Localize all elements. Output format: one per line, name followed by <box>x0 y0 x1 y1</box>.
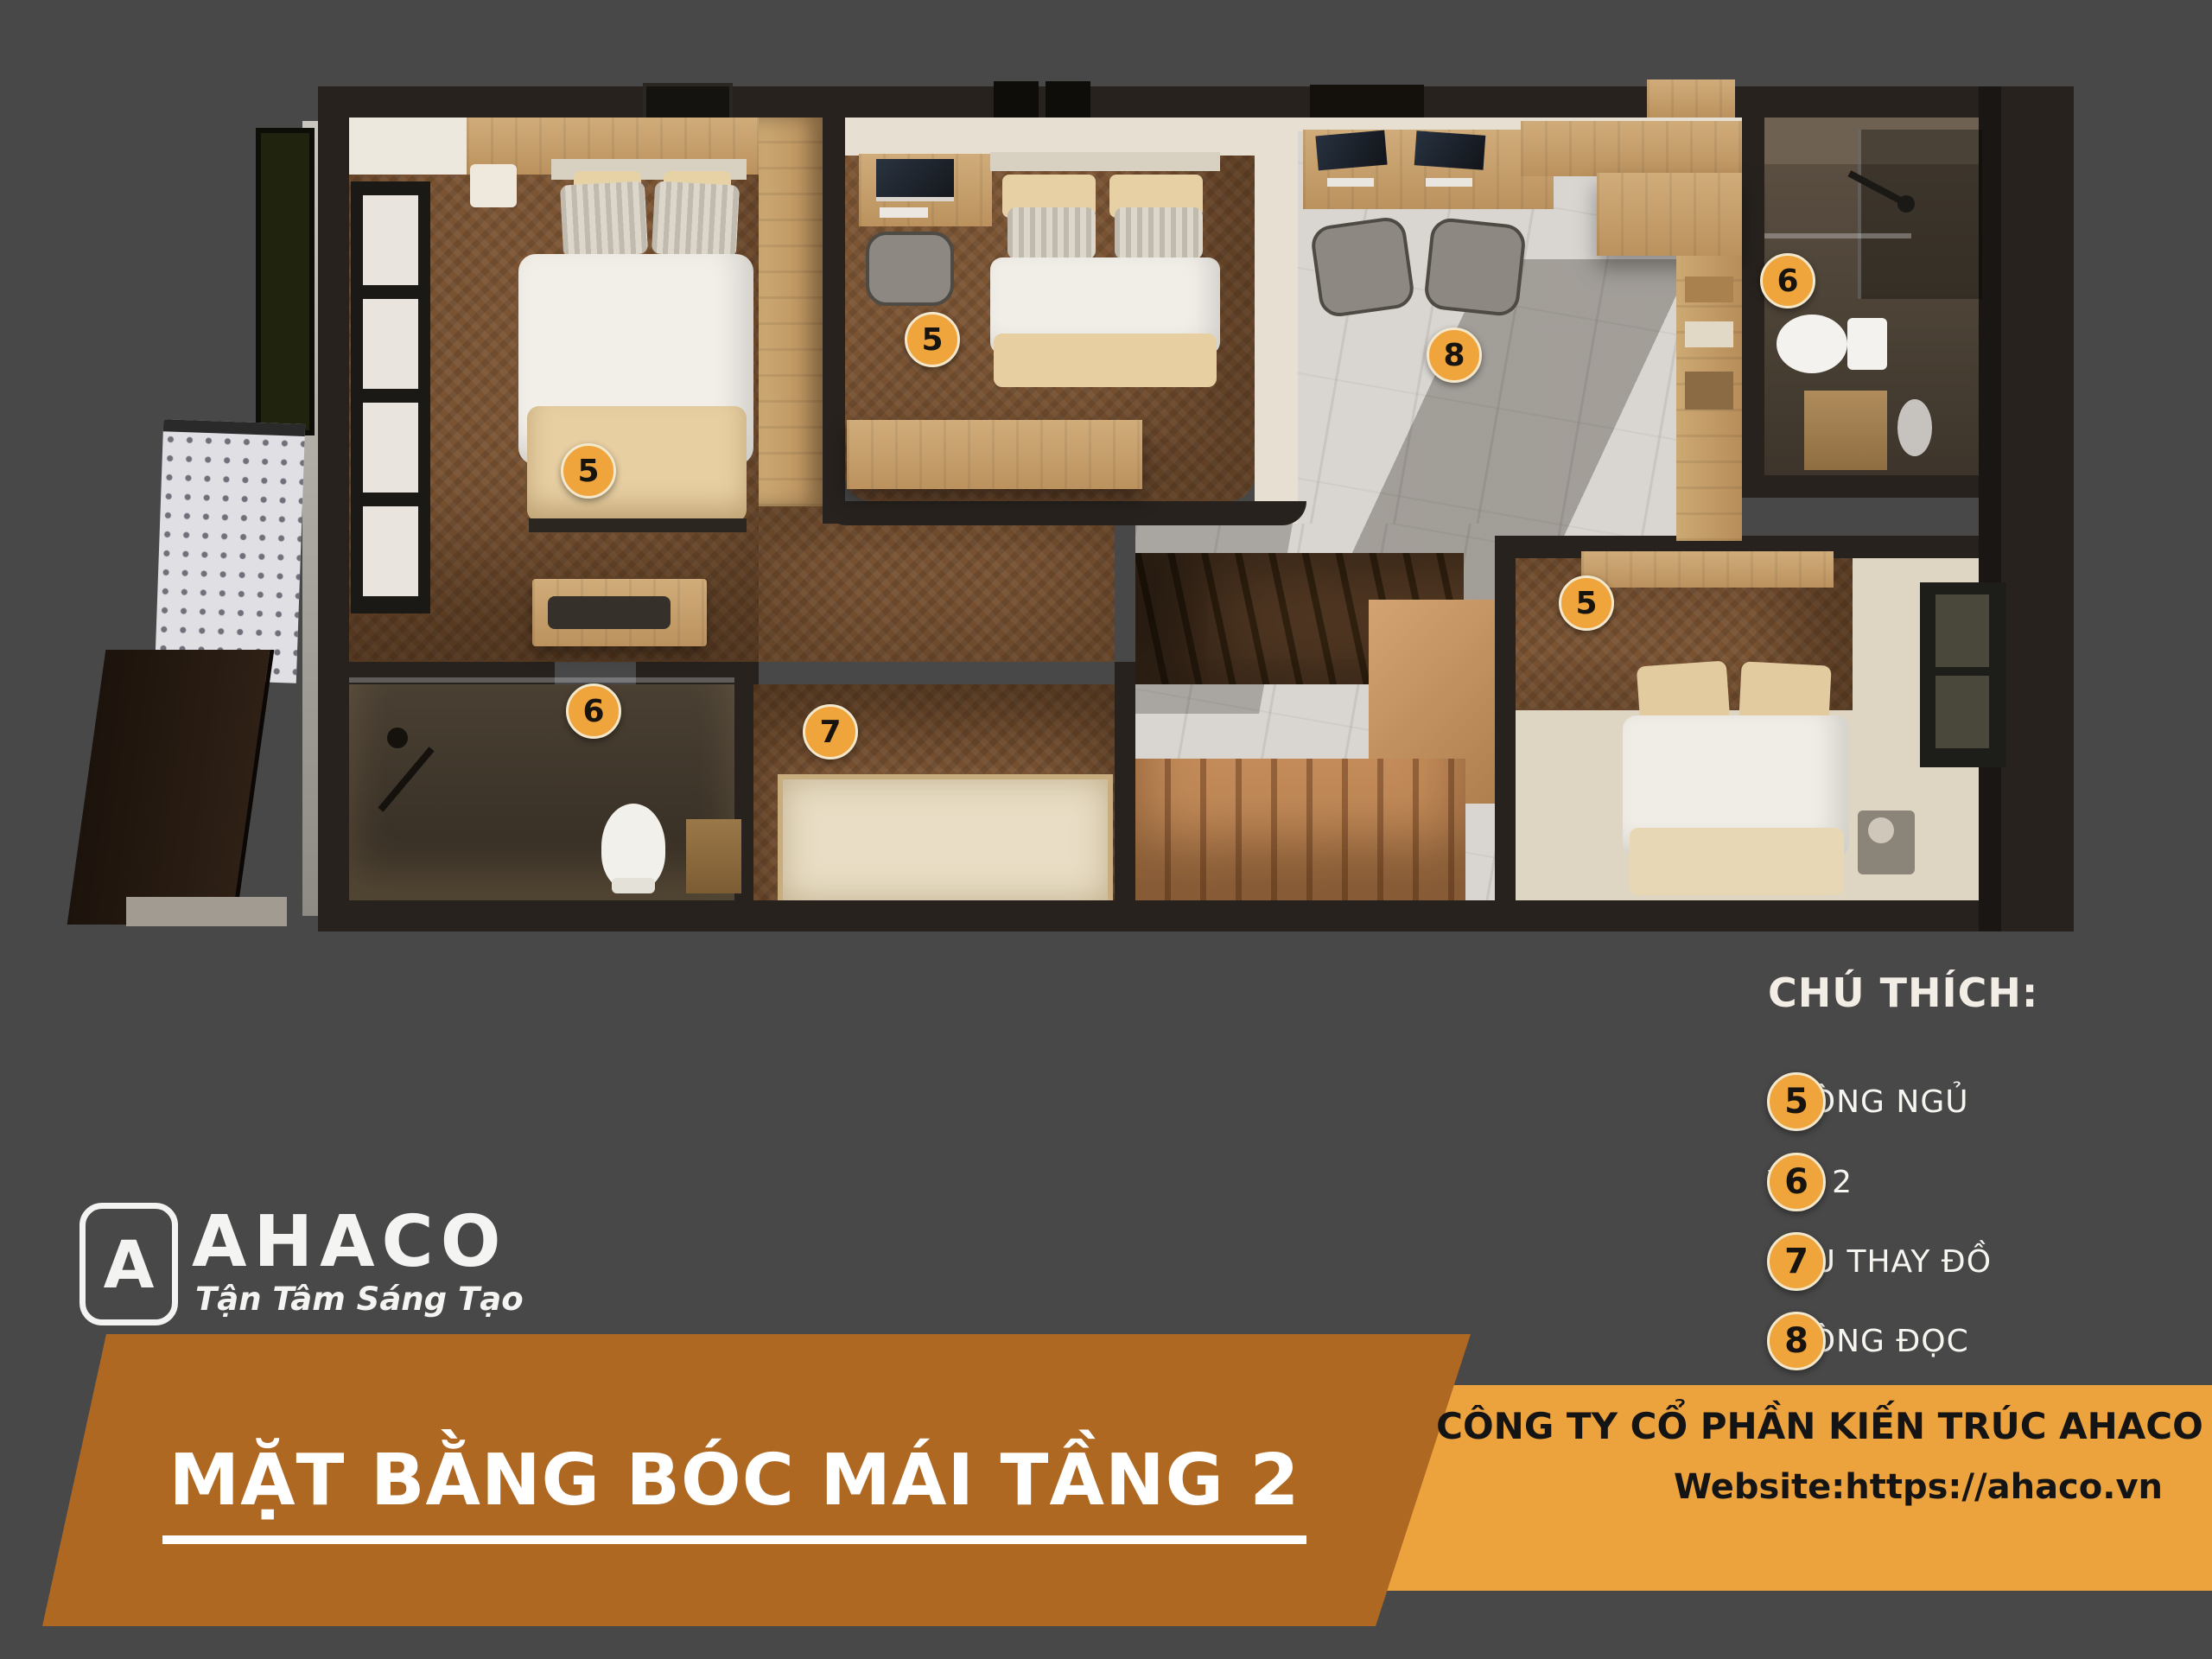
bed1-pillow-left <box>560 181 648 257</box>
bed1-pillow-right <box>652 181 740 257</box>
bedroom3-shelf-band <box>1581 551 1834 588</box>
legend-item-wc: 6 WC 2 <box>1767 1155 1853 1209</box>
bathroom-toilet-base <box>612 878 655 893</box>
bedroom2-wall-band <box>845 118 1255 156</box>
bedroom2-low-dresser <box>847 420 1142 489</box>
logo-icon-letter: A <box>104 1226 155 1303</box>
wall-bedroom2-bottom <box>823 501 1306 525</box>
imac-monitor <box>876 159 954 201</box>
logo-icon: A <box>79 1203 178 1325</box>
poster-canvas: 5675865 CHÚ THÍCH: 5 PHÒNG NGỦ 6 WC 2 7 … <box>0 0 2212 1659</box>
monitor <box>1315 130 1387 171</box>
company-name: CÔNG TY CỔ PHẦN KIẾN TRÚC AHACO <box>1426 1405 2212 1447</box>
wall-bedroom3-left <box>1495 536 1516 900</box>
exterior-lattice-screen <box>155 419 305 683</box>
legend-item-changing: 7 KHU THAY ĐỒ <box>1767 1235 1992 1288</box>
window-pane-dark <box>1935 594 1989 667</box>
outer-wall-bottom <box>318 900 2074 931</box>
shelf-item <box>1685 276 1733 302</box>
window-pane <box>363 403 418 493</box>
skylight-right <box>1046 81 1090 118</box>
exterior-louver-panel <box>256 128 315 435</box>
outer-wall-top <box>318 86 2074 118</box>
banner-title: MẶT BẰNG BÓC MÁI TẦNG 2 <box>162 1440 1307 1544</box>
bed1-footboard <box>529 518 747 532</box>
window-pane <box>363 299 418 389</box>
changing-mat <box>778 774 1113 906</box>
company-website: Website:https://ahaco.vn <box>1624 1467 2212 1507</box>
logo-brand: AHACO <box>192 1201 507 1283</box>
bed2-pillow-left <box>1007 207 1096 259</box>
wall-reading-wc <box>1742 118 1764 498</box>
glass-partition <box>1764 233 1911 238</box>
office-chair <box>1423 217 1527 318</box>
dresser-tray <box>548 596 671 629</box>
bathroom-shower-disc <box>387 728 408 748</box>
desk-chair <box>866 232 954 306</box>
wall-bedroom1-bedroom2 <box>823 118 845 524</box>
wardrobe-divider-strip <box>759 118 823 506</box>
exterior-step <box>126 897 287 926</box>
bathroom-glass-line <box>349 677 734 683</box>
legend-item-reading: 8 PHÒNG ĐỌC <box>1767 1314 1969 1368</box>
reading-cabinet-top <box>1521 121 1742 176</box>
bed1-blanket <box>527 406 747 522</box>
toilet-bowl <box>1777 315 1847 373</box>
wall-wc-bottom <box>1742 475 1979 498</box>
keyboard <box>1426 178 1472 187</box>
bed3-blanket <box>1630 828 1844 895</box>
wc-mirror <box>1897 399 1932 456</box>
wc-vanity <box>1804 391 1887 470</box>
bedroom1-nightstand <box>470 164 517 207</box>
bed2-blanket <box>994 334 1217 387</box>
bed2-pillow-right <box>1115 207 1203 259</box>
wall-changing-stairs <box>1115 662 1135 900</box>
bed2-headboard <box>990 152 1220 171</box>
monitor <box>1414 130 1486 169</box>
legend-badge-8: 8 <box>1767 1312 1826 1370</box>
bathroom-floor <box>349 684 734 900</box>
window-pane <box>363 506 418 596</box>
toilet-tank <box>1847 318 1887 370</box>
office-chair <box>1309 215 1416 319</box>
keyboard <box>1327 178 1374 187</box>
exterior-garage-panel <box>67 650 275 925</box>
bedroom2-right-wallcap <box>1255 118 1298 524</box>
legend-title: CHÚ THÍCH: <box>1768 969 2038 1016</box>
corridor-floor <box>759 506 1115 662</box>
shelf-item <box>1685 321 1733 347</box>
stairs-lower-flight <box>1135 759 1465 900</box>
reading-cabinet-block <box>1597 173 1742 256</box>
outer-wall-left <box>318 86 349 931</box>
legend-badge-5: 5 <box>1767 1072 1826 1131</box>
shower-head-disc <box>1897 195 1915 213</box>
skylight-left <box>994 81 1039 118</box>
bedroom1-cabinet <box>349 118 467 175</box>
shower-zone <box>1858 130 1982 299</box>
banner-title-wrap: MẶT BẰNG BÓC MÁI TẦNG 2 <box>130 1440 1339 1544</box>
bathroom-toilet-bowl <box>601 804 665 890</box>
legend-badge-7: 7 <box>1767 1232 1826 1291</box>
logo-tagline: Tận Tâm Sáng Tạo <box>195 1281 524 1318</box>
shelf-item <box>1685 372 1733 410</box>
legend-badge-6: 6 <box>1767 1153 1826 1211</box>
legend-item-bedroom: 5 PHÒNG NGỦ <box>1767 1075 1969 1128</box>
table-lamp <box>1868 817 1894 843</box>
keyboard <box>880 207 928 218</box>
outer-wall-right <box>1979 86 2074 931</box>
roof-wood-box <box>1647 79 1735 118</box>
window-pane <box>363 195 418 285</box>
bathroom-cabinet <box>686 819 741 893</box>
window-pane-dark <box>1935 676 1989 748</box>
roof-panel <box>1310 85 1424 118</box>
